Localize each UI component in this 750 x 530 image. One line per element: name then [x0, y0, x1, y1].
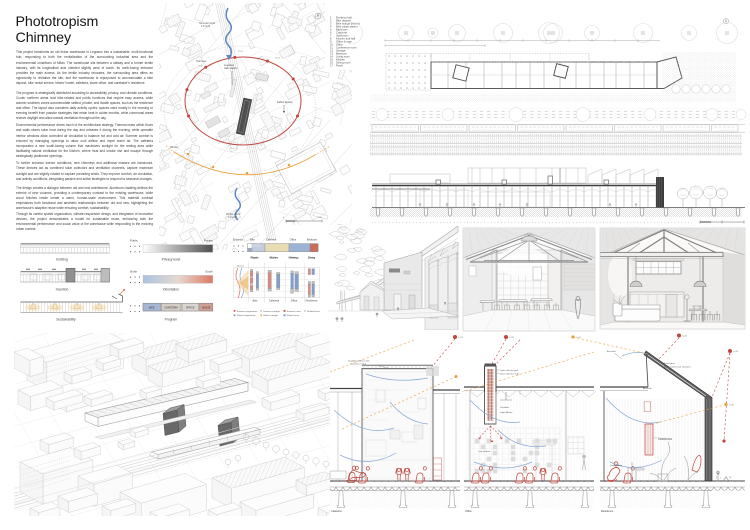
svg-text:Summer sunlight: Summer sunlight	[263, 310, 280, 313]
svg-text:Air outlet: Air outlet	[607, 350, 616, 353]
svg-text:h.21: h.21	[459, 337, 464, 339]
svg-text:Orientation: Orientation	[163, 288, 179, 292]
svg-text:Entrance: Entrance	[233, 239, 244, 242]
svg-text:Winter hours: Winter hours	[287, 314, 300, 317]
svg-text:CAFETERIA: CAFETERIA	[164, 307, 178, 310]
svg-text:Public: Public	[130, 239, 138, 243]
svg-text:Cafeteria: Cafeteria	[331, 509, 342, 513]
svg-text:Winter temperature: Winter temperature	[237, 314, 257, 317]
svg-text:Residence: Residence	[306, 300, 318, 303]
svg-text:h.21: h.21	[683, 336, 688, 338]
svg-text:Bedroom: Bedroom	[307, 239, 317, 242]
svg-text:Private: Private	[204, 239, 213, 243]
svg-text:Low window: Low window	[610, 465, 622, 467]
svg-text:Cafeteria: Cafeteria	[266, 239, 277, 242]
svg-text:Office: Office	[291, 300, 298, 303]
svg-text:seasonal control: seasonal control	[350, 362, 366, 365]
svg-text:Ventilator: Ventilator	[500, 406, 509, 409]
svg-text:Fixed glass: Fixed glass	[664, 363, 676, 365]
svg-text:HOUSE: HOUSE	[202, 307, 211, 310]
svg-text:Thermal mass: Thermal mass	[658, 437, 673, 440]
svg-text:Dining: Dining	[308, 256, 316, 259]
svg-text:Privacy level: Privacy level	[162, 258, 181, 262]
svg-text:Kitchen: Kitchen	[270, 256, 279, 259]
svg-text:h.19: h.19	[734, 351, 739, 353]
svg-text:OFFICE: OFFICE	[186, 307, 195, 310]
svg-text:North: North	[130, 269, 137, 273]
svg-text:Low window: Low window	[478, 451, 490, 453]
svg-text:Max/Lux: Max/Lux	[237, 266, 244, 268]
svg-text:Program: Program	[165, 318, 178, 322]
svg-text:Absorber: Absorber	[643, 387, 652, 390]
svg-text:Winter: Winter	[170, 145, 178, 149]
svg-text:Office: Office	[290, 239, 297, 242]
svg-text:Repair: Repair	[251, 256, 259, 259]
svg-text:Office: Office	[465, 509, 472, 513]
svg-text:17 km/h: 17 km/h	[201, 24, 211, 28]
svg-text:Daylight windows with: Daylight windows with	[348, 360, 370, 363]
svg-text:Light diffuser: Light diffuser	[500, 411, 513, 414]
svg-text:17: 17	[330, 64, 333, 68]
svg-text:train station: train station	[224, 66, 238, 70]
svg-text:Sustainability: Sustainability	[56, 318, 76, 322]
svg-text:Shifted hours: Shifted hours	[307, 310, 321, 313]
svg-text:Summer temperature: Summer temperature	[237, 310, 258, 313]
svg-text:Residence: Residence	[601, 509, 614, 513]
svg-text:BIKE: BIKE	[149, 307, 155, 310]
svg-text:South: South	[205, 269, 213, 273]
svg-text:Cafeteria: Cafeteria	[269, 300, 280, 303]
svg-text:Summer hours: Summer hours	[287, 310, 302, 313]
svg-text:Bike: Bike	[250, 239, 255, 242]
svg-text:h.17: h.17	[577, 337, 582, 339]
svg-text:Fabric factory: Fabric factory	[277, 100, 293, 104]
svg-text:Summer: Summer	[196, 59, 207, 63]
svg-text:Bike: Bike	[253, 300, 258, 303]
svg-text:h.21: h.21	[510, 337, 515, 339]
svg-text:12 km/h: 12 km/h	[228, 215, 238, 219]
svg-text:12:00: 12:00	[238, 51, 244, 53]
svg-text:Meeting: Meeting	[290, 256, 300, 259]
svg-text:h.15: h.15	[730, 405, 735, 407]
svg-text:Winter sunlight: Winter sunlight	[263, 314, 278, 317]
svg-text:Light collector grid: Light collector grid	[500, 369, 519, 372]
svg-text:Black mattress/air absorber: Black mattress/air absorber	[664, 366, 691, 369]
svg-text:15:00: 15:00	[275, 58, 281, 60]
svg-text:Porch: Porch	[336, 64, 344, 68]
svg-text:Existing: Existing	[56, 258, 68, 262]
svg-text:Insertion: Insertion	[56, 288, 69, 292]
svg-text:Solar reflective tube: Solar reflective tube	[500, 373, 520, 376]
svg-text:9:00: 9:00	[199, 65, 204, 67]
